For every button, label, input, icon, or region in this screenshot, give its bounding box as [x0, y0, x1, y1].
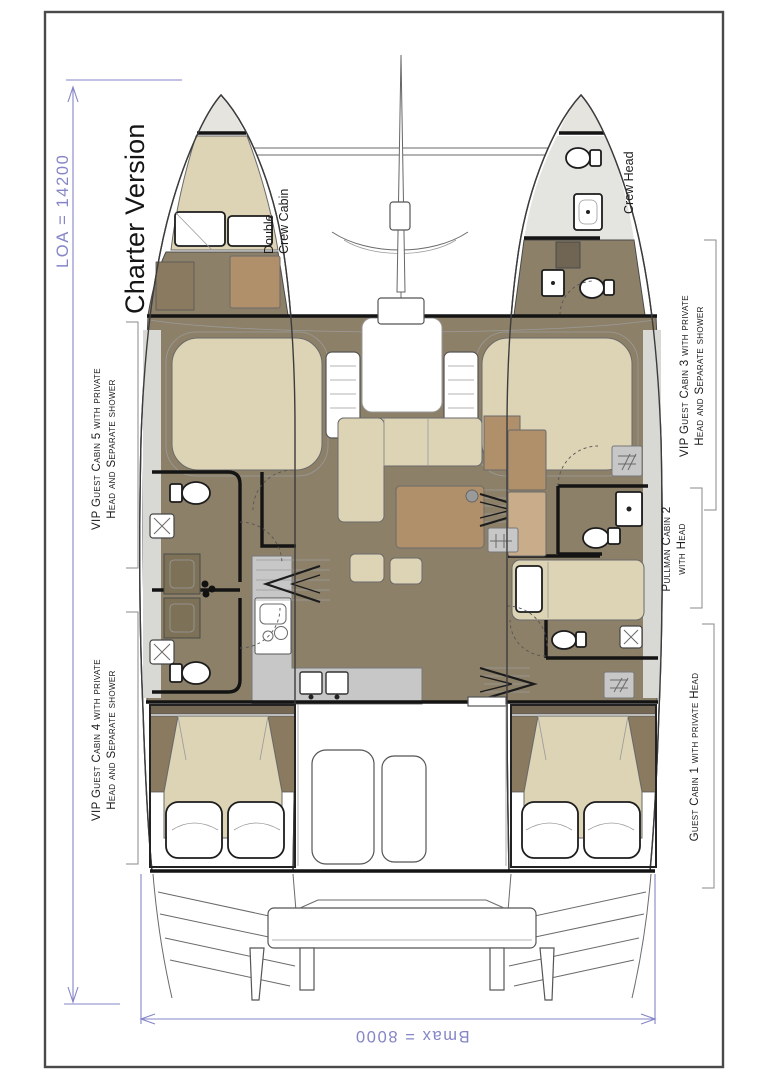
drawing-sheet: Charter Version LOA = 14200 Double Crew …	[0, 0, 764, 1080]
sliding-door	[468, 697, 506, 706]
aft-platform	[268, 908, 536, 948]
vip-cabin-5-label: VIP Guest Cabin 5 with private Head and …	[90, 322, 120, 576]
vip-cabin-3-label: VIP Guest Cabin 3 with private Head and …	[678, 240, 708, 512]
pillow	[516, 566, 542, 612]
vip-cabin-4-label: VIP Guest Cabin 4 with private Head and …	[90, 612, 120, 868]
seat-cushion	[166, 802, 222, 858]
aft-cabin-port	[150, 705, 295, 867]
deck-hatch-icon	[604, 672, 634, 698]
saloon-table	[362, 318, 442, 412]
windlass	[390, 202, 410, 230]
saloon-area	[143, 316, 661, 706]
drawing-title: Charter Version	[120, 94, 151, 314]
vip-cabin-5-bed	[172, 338, 322, 470]
skeg	[250, 948, 264, 1000]
toilet-icon	[182, 662, 210, 684]
foredeck-rigging	[248, 55, 554, 314]
toilet-icon	[583, 528, 609, 548]
cabinet	[508, 430, 546, 490]
stern	[150, 871, 655, 1000]
shower-tray	[556, 242, 580, 268]
cockpit-bench	[312, 750, 374, 864]
pillow	[175, 212, 225, 246]
cockpit-bench	[382, 756, 426, 862]
sink-icon	[326, 672, 348, 694]
fore-deck-hatch	[378, 298, 424, 324]
cabinet	[230, 256, 280, 308]
deck-hatch-icon	[612, 446, 642, 476]
lamp	[466, 490, 478, 502]
crew-head-label: Crew Head	[622, 119, 637, 214]
locker	[156, 262, 194, 310]
toilet-icon	[580, 278, 604, 298]
ottoman	[350, 554, 384, 582]
toilet-icon	[552, 631, 576, 649]
aft-cabin-starboard	[511, 705, 656, 867]
sofa	[338, 418, 384, 522]
toilet-icon	[182, 482, 210, 504]
deck-hatch-icon	[488, 528, 518, 552]
bmax-dimension-label: Bmax = 8000	[292, 1026, 532, 1045]
pullman-cabin-2-label: Pullman Cabin 2 with Head	[660, 488, 690, 610]
guest-cabin-1-label: Guest Cabin 1 with private Head	[688, 624, 703, 890]
skeg	[540, 948, 554, 1000]
cockpit	[298, 704, 506, 866]
ottoman	[390, 558, 422, 584]
bowsprit-pole	[397, 55, 405, 292]
seat-cushion	[228, 802, 284, 858]
toilet-icon	[566, 148, 590, 168]
sink-icon	[300, 672, 322, 694]
loa-dimension-label: LOA = 14200	[54, 118, 73, 268]
double-crew-cabin-label: Double Crew Cabin	[262, 154, 292, 254]
